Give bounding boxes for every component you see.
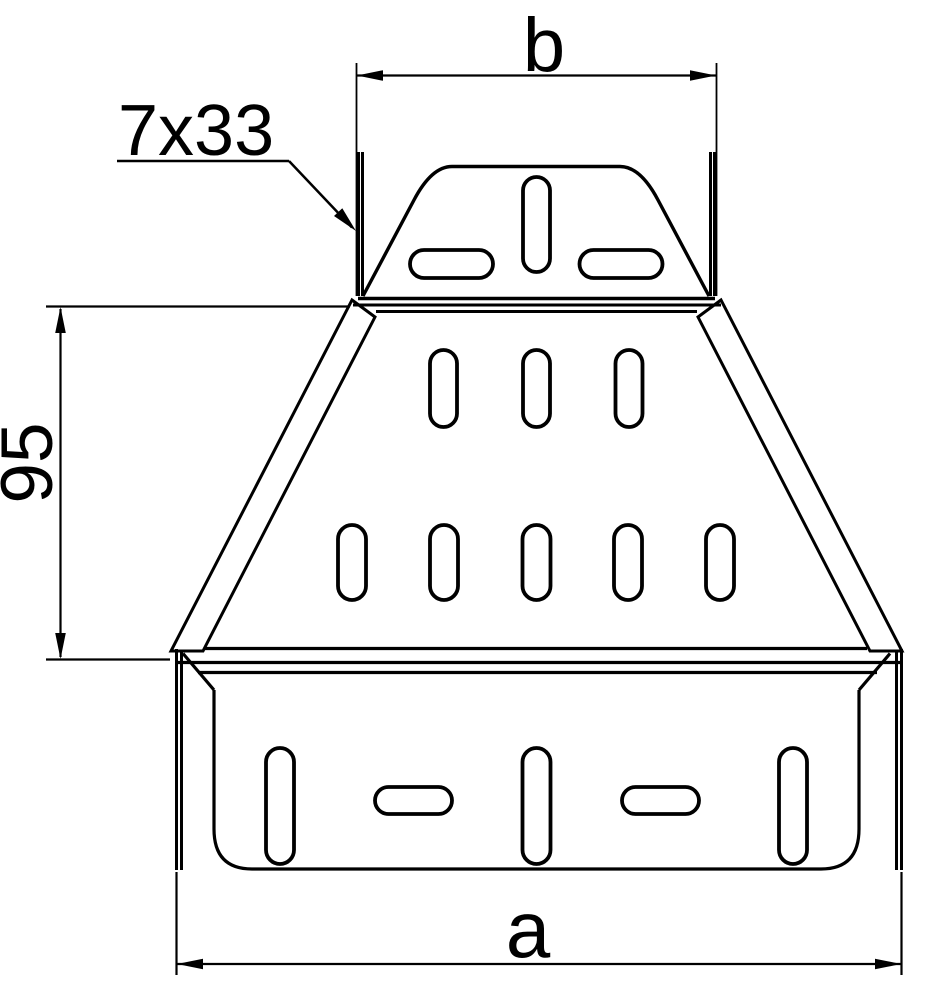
- top-plate-right-slot: [580, 250, 663, 278]
- dimension-95-label: 95: [0, 422, 68, 503]
- arrowhead-b-right: [690, 70, 716, 81]
- dimension-95: 95: [0, 307, 350, 660]
- arrowhead-95-bottom: [55, 633, 66, 659]
- arrowhead-a-right: [875, 959, 901, 970]
- reducer-technical-drawing: b 95 a 7x33: [0, 0, 937, 991]
- bottom-panel-outline: [214, 690, 859, 869]
- technical-drawing-page: b 95 a 7x33: [0, 0, 937, 991]
- middle-lower-slot-3: [523, 525, 551, 600]
- slot-callout-label: 7x33: [118, 91, 274, 171]
- dimension-b-label: b: [523, 3, 565, 88]
- arrowhead-95-top: [55, 307, 66, 333]
- middle-lower-slot-4: [614, 525, 642, 600]
- middle-upper-slot-1: [430, 350, 457, 427]
- middle-lower-slot-2: [430, 525, 458, 600]
- middle-lower-slot-1: [338, 525, 366, 600]
- middle-lower-slot-5: [706, 525, 734, 600]
- middle-upper-slot-2: [523, 350, 550, 427]
- bottom-vertical-slot-2: [523, 748, 551, 864]
- top-plate-center-slot: [523, 177, 550, 272]
- top-plate-left-slot: [410, 250, 493, 278]
- dimension-a: a: [177, 872, 902, 975]
- arrowhead-b-left: [357, 70, 383, 81]
- middle-upper-slot-3: [616, 350, 643, 427]
- dimension-b: b: [357, 3, 716, 88]
- bottom-horizontal-slot-2: [622, 787, 699, 814]
- arrowhead-a-left: [177, 959, 203, 970]
- slot-callout-7x33: 7x33: [117, 91, 356, 231]
- bottom-vertical-slot-3: [779, 748, 807, 864]
- dimension-a-label: a: [506, 885, 551, 974]
- bottom-vertical-slot-1: [266, 748, 294, 864]
- bottom-horizontal-slot-1: [375, 787, 452, 814]
